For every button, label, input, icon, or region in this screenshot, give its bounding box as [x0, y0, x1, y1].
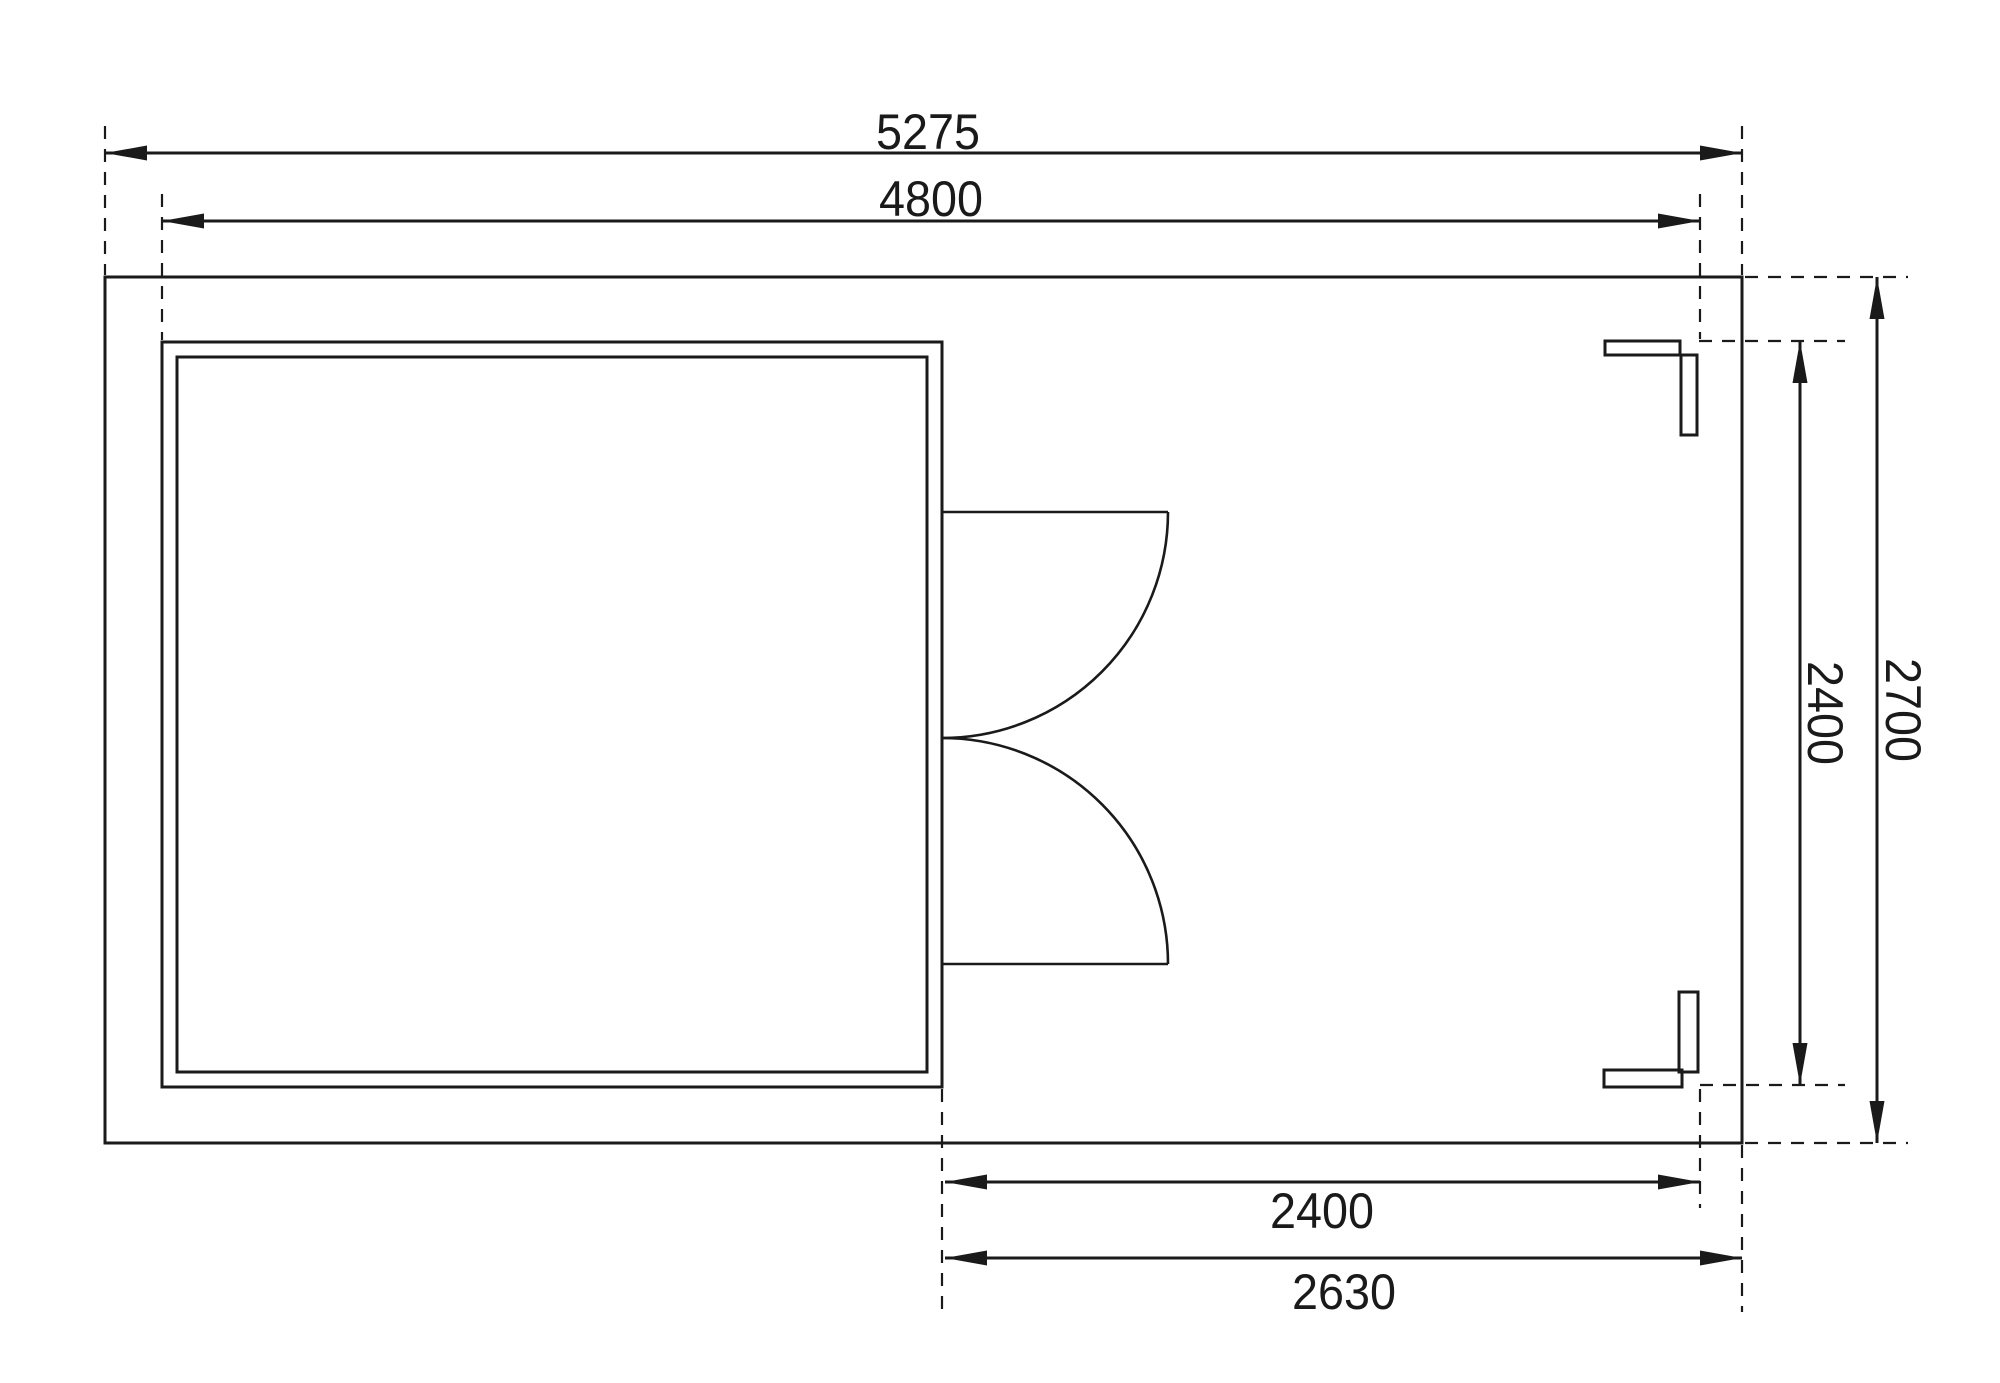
- shed-wall-outer: [162, 342, 942, 1087]
- dimension-value: 2400: [1270, 1183, 1374, 1239]
- dimension-value: 2400: [1797, 661, 1853, 765]
- dimension-value: 2630: [1292, 1264, 1396, 1320]
- door-swing-arc-bottom: [942, 738, 1168, 964]
- corner-post-bottom-right: [1604, 992, 1698, 1087]
- floor-plan-canvas: 5275 4800 2400 2700 2400 2630: [0, 0, 2000, 1383]
- door-swing-arc-top: [942, 512, 1168, 738]
- dimension-side-depth-overall: 2700: [1875, 277, 1931, 1143]
- dimension-value: 4800: [879, 171, 983, 227]
- dimension-overall-width: 5275: [105, 104, 1742, 160]
- shed-building: [162, 342, 942, 1087]
- dimension-front-annex-width: 2630: [945, 1258, 1742, 1320]
- double-door: [942, 512, 1168, 964]
- post-bar-horizontal: [1604, 1070, 1682, 1087]
- dimension-value: 2700: [1875, 658, 1931, 762]
- dimension-value: 5275: [876, 104, 980, 160]
- post-bar-vertical: [1681, 355, 1697, 435]
- dimension-side-depth-inner: 2400: [1797, 341, 1853, 1085]
- corner-post-top-right: [1605, 341, 1697, 435]
- extension-lines: [105, 126, 1908, 1312]
- post-bar-horizontal: [1605, 341, 1680, 355]
- site-boundary-outline: [105, 277, 1742, 1143]
- floor-plan-page: 5275 4800 2400 2700 2400 2630: [0, 0, 2000, 1383]
- dimension-building-width: 4800: [162, 171, 1700, 227]
- post-bar-vertical: [1679, 992, 1698, 1072]
- shed-interior-floor: [177, 357, 927, 1072]
- dimension-front-opening-width: 2400: [945, 1182, 1700, 1239]
